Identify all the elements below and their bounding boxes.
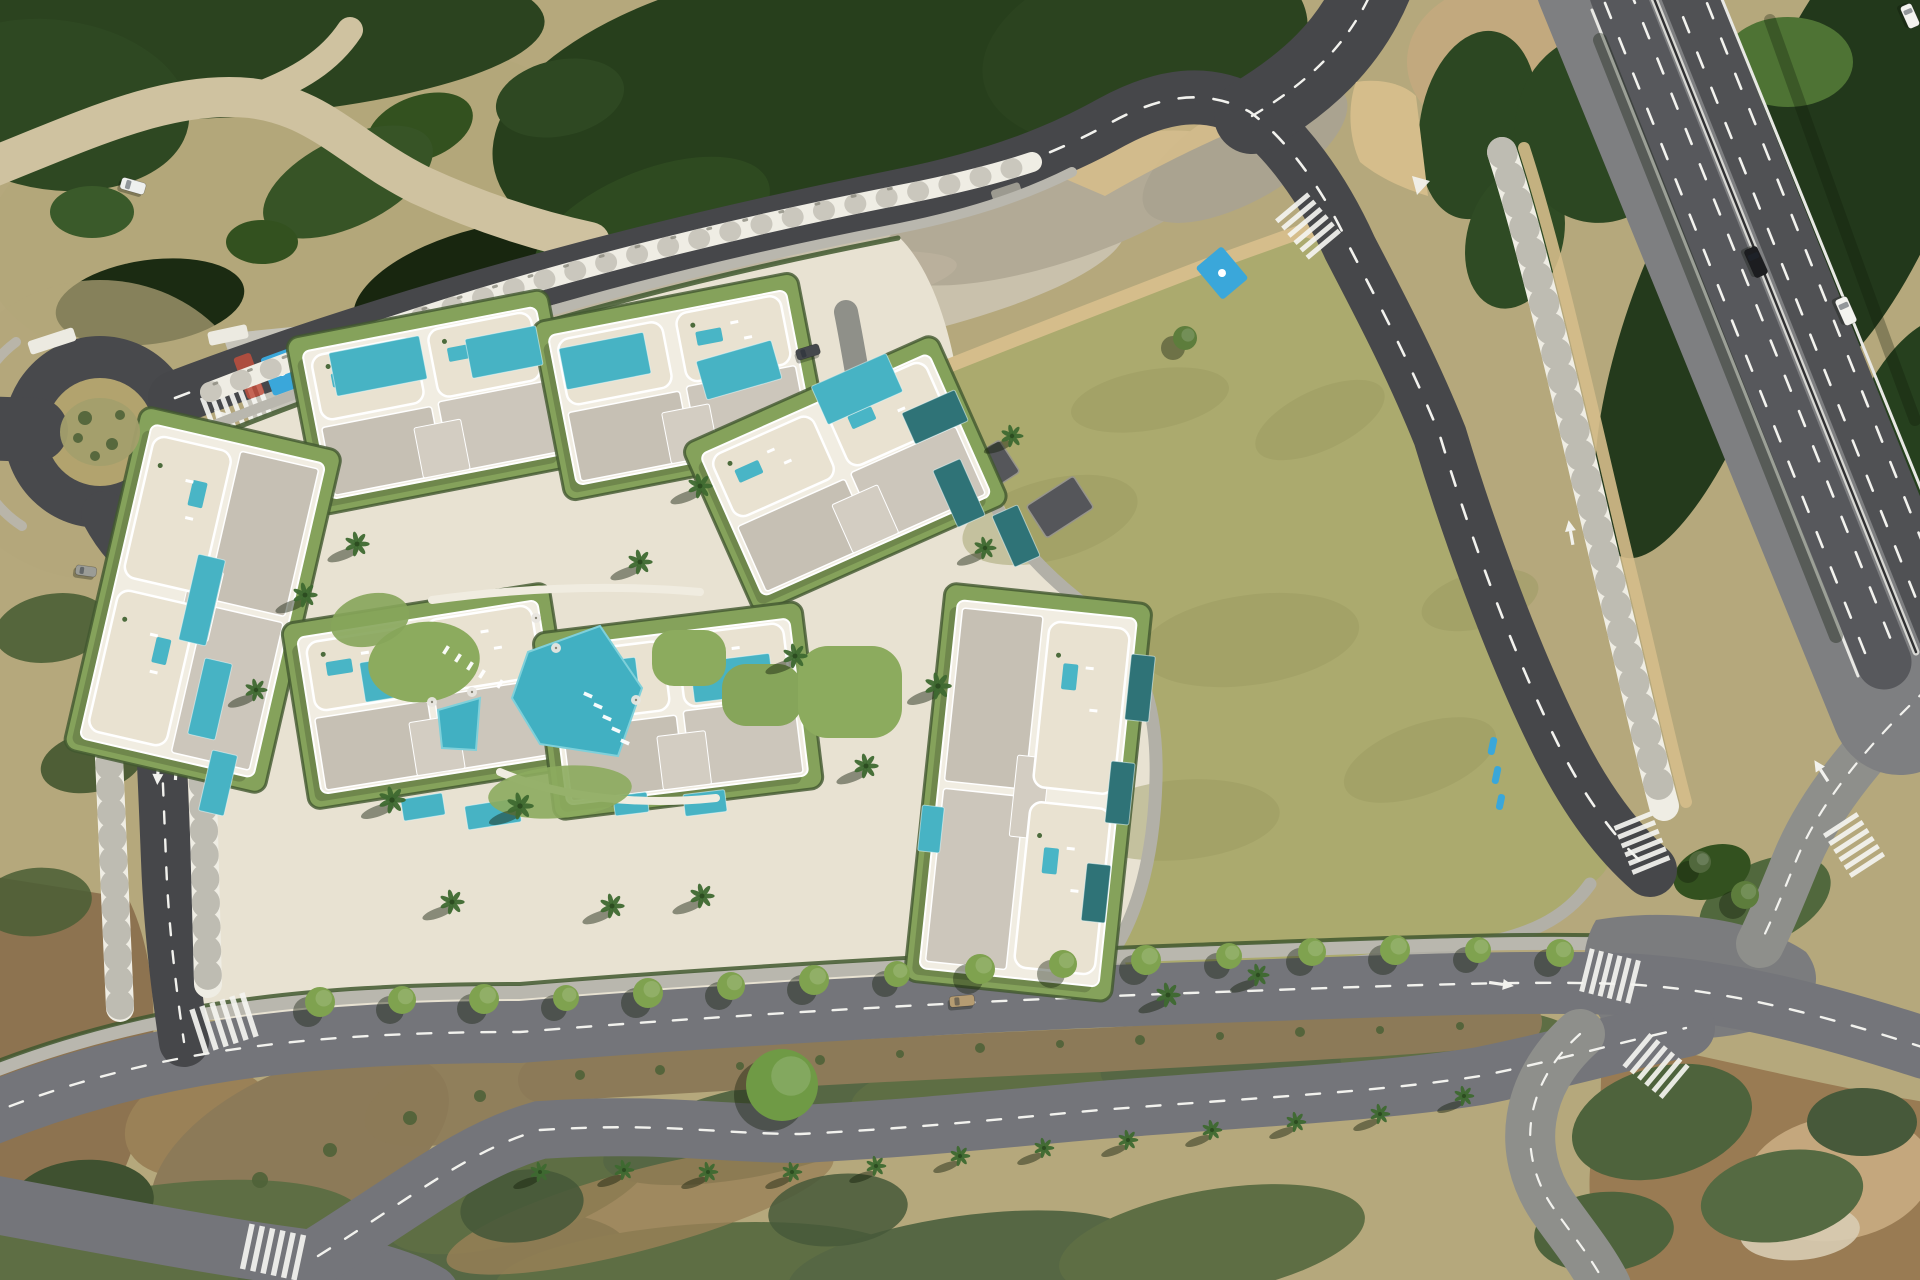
palm-crown	[1210, 1128, 1214, 1132]
tree-highlight	[727, 975, 742, 990]
garden-pool	[918, 805, 945, 853]
shrub	[1216, 1032, 1224, 1040]
tree-highlight	[976, 957, 993, 974]
tree-highlight	[398, 989, 413, 1004]
palm-crown	[303, 593, 308, 598]
palm-crown	[1042, 1146, 1046, 1150]
tree-highlight	[1308, 941, 1323, 956]
lawn	[652, 630, 726, 686]
palm-crown	[517, 803, 522, 808]
palm-crown	[1294, 1120, 1298, 1124]
tree-highlight	[1474, 940, 1488, 954]
palm-crown	[958, 1154, 962, 1158]
aerial-view	[0, 0, 1920, 1280]
palm-crown	[389, 797, 394, 802]
tree-highlight	[644, 981, 661, 998]
shrub	[975, 1043, 985, 1053]
parasol-pole	[635, 699, 637, 701]
parasol-pole	[471, 691, 473, 693]
car-body	[949, 994, 975, 1007]
tree-highlight	[1391, 938, 1408, 955]
parasol-pole	[535, 617, 537, 619]
shrub	[655, 1065, 665, 1075]
villa-roof-step	[414, 419, 470, 478]
tree-highlight	[1142, 948, 1159, 965]
lawn	[722, 664, 802, 726]
villa-roof-step	[657, 731, 712, 790]
tree-highlight	[1556, 942, 1571, 957]
palm-crown	[610, 904, 615, 909]
shrub	[1295, 1027, 1305, 1037]
palm-crown	[790, 1170, 794, 1174]
shrub	[1456, 1022, 1464, 1030]
parasol-pole	[555, 647, 557, 649]
shrub	[474, 1090, 486, 1102]
road-stub	[0, 428, 36, 430]
palm-crown	[254, 688, 258, 692]
tree-highlight	[771, 1056, 811, 1096]
tree-highlight	[1741, 884, 1756, 899]
palm-crown	[355, 542, 360, 547]
tree-highlight	[893, 964, 907, 978]
palm-crown	[983, 546, 987, 550]
shrub	[115, 410, 125, 420]
shrub	[736, 1062, 744, 1070]
car-windshield	[954, 997, 960, 1005]
palm-crown	[1256, 973, 1260, 977]
car	[947, 994, 975, 1010]
palm-crown	[450, 900, 455, 905]
palm-crown	[1010, 434, 1014, 438]
palm-crown	[622, 1168, 626, 1172]
terrace-pool	[1042, 847, 1060, 874]
tree-highlight	[810, 968, 827, 985]
shrub	[323, 1143, 337, 1157]
bush	[226, 220, 298, 264]
palm-crown	[793, 654, 798, 659]
shrub	[73, 433, 83, 443]
shrub	[1135, 1035, 1145, 1045]
parasol-pole	[431, 701, 433, 703]
palm-crown	[935, 683, 940, 688]
tree-highlight	[1697, 853, 1709, 865]
palm-crown	[538, 1170, 542, 1174]
shrub	[403, 1111, 417, 1125]
satellite-canvas	[0, 0, 1920, 1280]
shrub	[575, 1070, 585, 1080]
tree-highlight	[1059, 953, 1074, 968]
scrub	[1807, 1088, 1917, 1156]
palm-crown	[1462, 1094, 1466, 1098]
tree-highlight	[562, 988, 576, 1002]
shrub	[1056, 1040, 1064, 1048]
lawn	[60, 398, 140, 466]
shrub	[1376, 1026, 1384, 1034]
shrub	[78, 411, 92, 425]
palm-crown	[700, 894, 705, 899]
shrub	[106, 438, 118, 450]
palm-crown	[638, 560, 643, 565]
terrace-pool	[1061, 663, 1079, 690]
palm-crown	[698, 484, 703, 489]
tree-highlight	[1181, 328, 1194, 341]
palm-crown	[874, 1164, 878, 1168]
tree-highlight	[480, 987, 497, 1004]
lawn	[798, 646, 902, 738]
palm-crown	[864, 764, 869, 769]
shrub	[896, 1050, 904, 1058]
palm-crown	[1166, 993, 1171, 998]
shrub	[815, 1055, 825, 1065]
palm-crown	[1126, 1138, 1130, 1142]
tree-highlight	[316, 990, 333, 1007]
shrub	[90, 451, 100, 461]
palm-crown	[1378, 1112, 1382, 1116]
palm-crown	[706, 1170, 710, 1174]
bush	[50, 186, 134, 238]
tree-highlight	[1225, 946, 1239, 960]
shrub	[252, 1172, 268, 1188]
